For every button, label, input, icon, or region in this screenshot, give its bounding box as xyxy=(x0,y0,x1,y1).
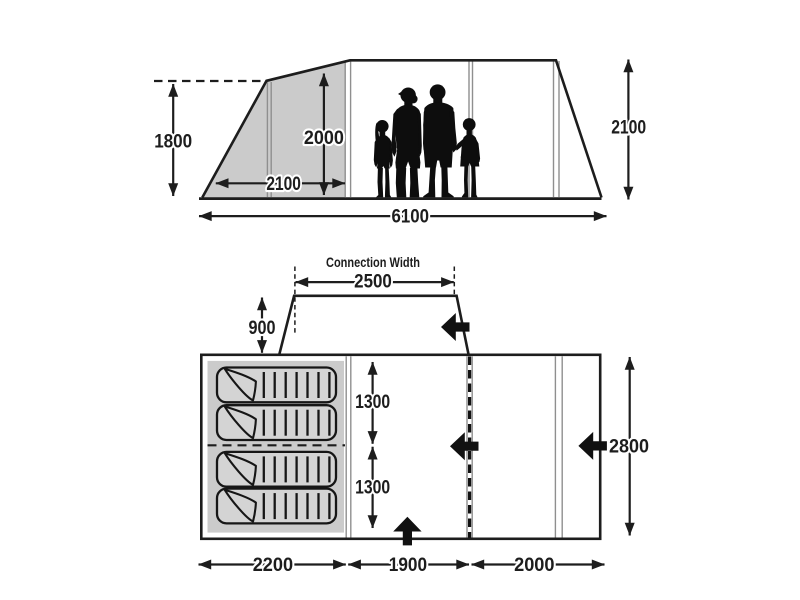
svg-text:1800: 1800 xyxy=(154,132,192,153)
svg-text:2500: 2500 xyxy=(354,272,392,293)
svg-text:2000: 2000 xyxy=(304,128,344,149)
svg-text:Connection Width: Connection Width xyxy=(326,255,420,270)
svg-text:2200: 2200 xyxy=(253,555,293,576)
svg-text:900: 900 xyxy=(249,318,276,339)
svg-text:1900: 1900 xyxy=(389,555,427,576)
svg-text:2100: 2100 xyxy=(611,118,646,139)
svg-text:2800: 2800 xyxy=(609,436,649,457)
svg-text:1300: 1300 xyxy=(355,477,390,498)
svg-text:2100: 2100 xyxy=(266,174,301,195)
svg-text:2000: 2000 xyxy=(514,555,554,576)
svg-text:6100: 6100 xyxy=(392,206,430,227)
svg-text:1300: 1300 xyxy=(355,392,390,413)
